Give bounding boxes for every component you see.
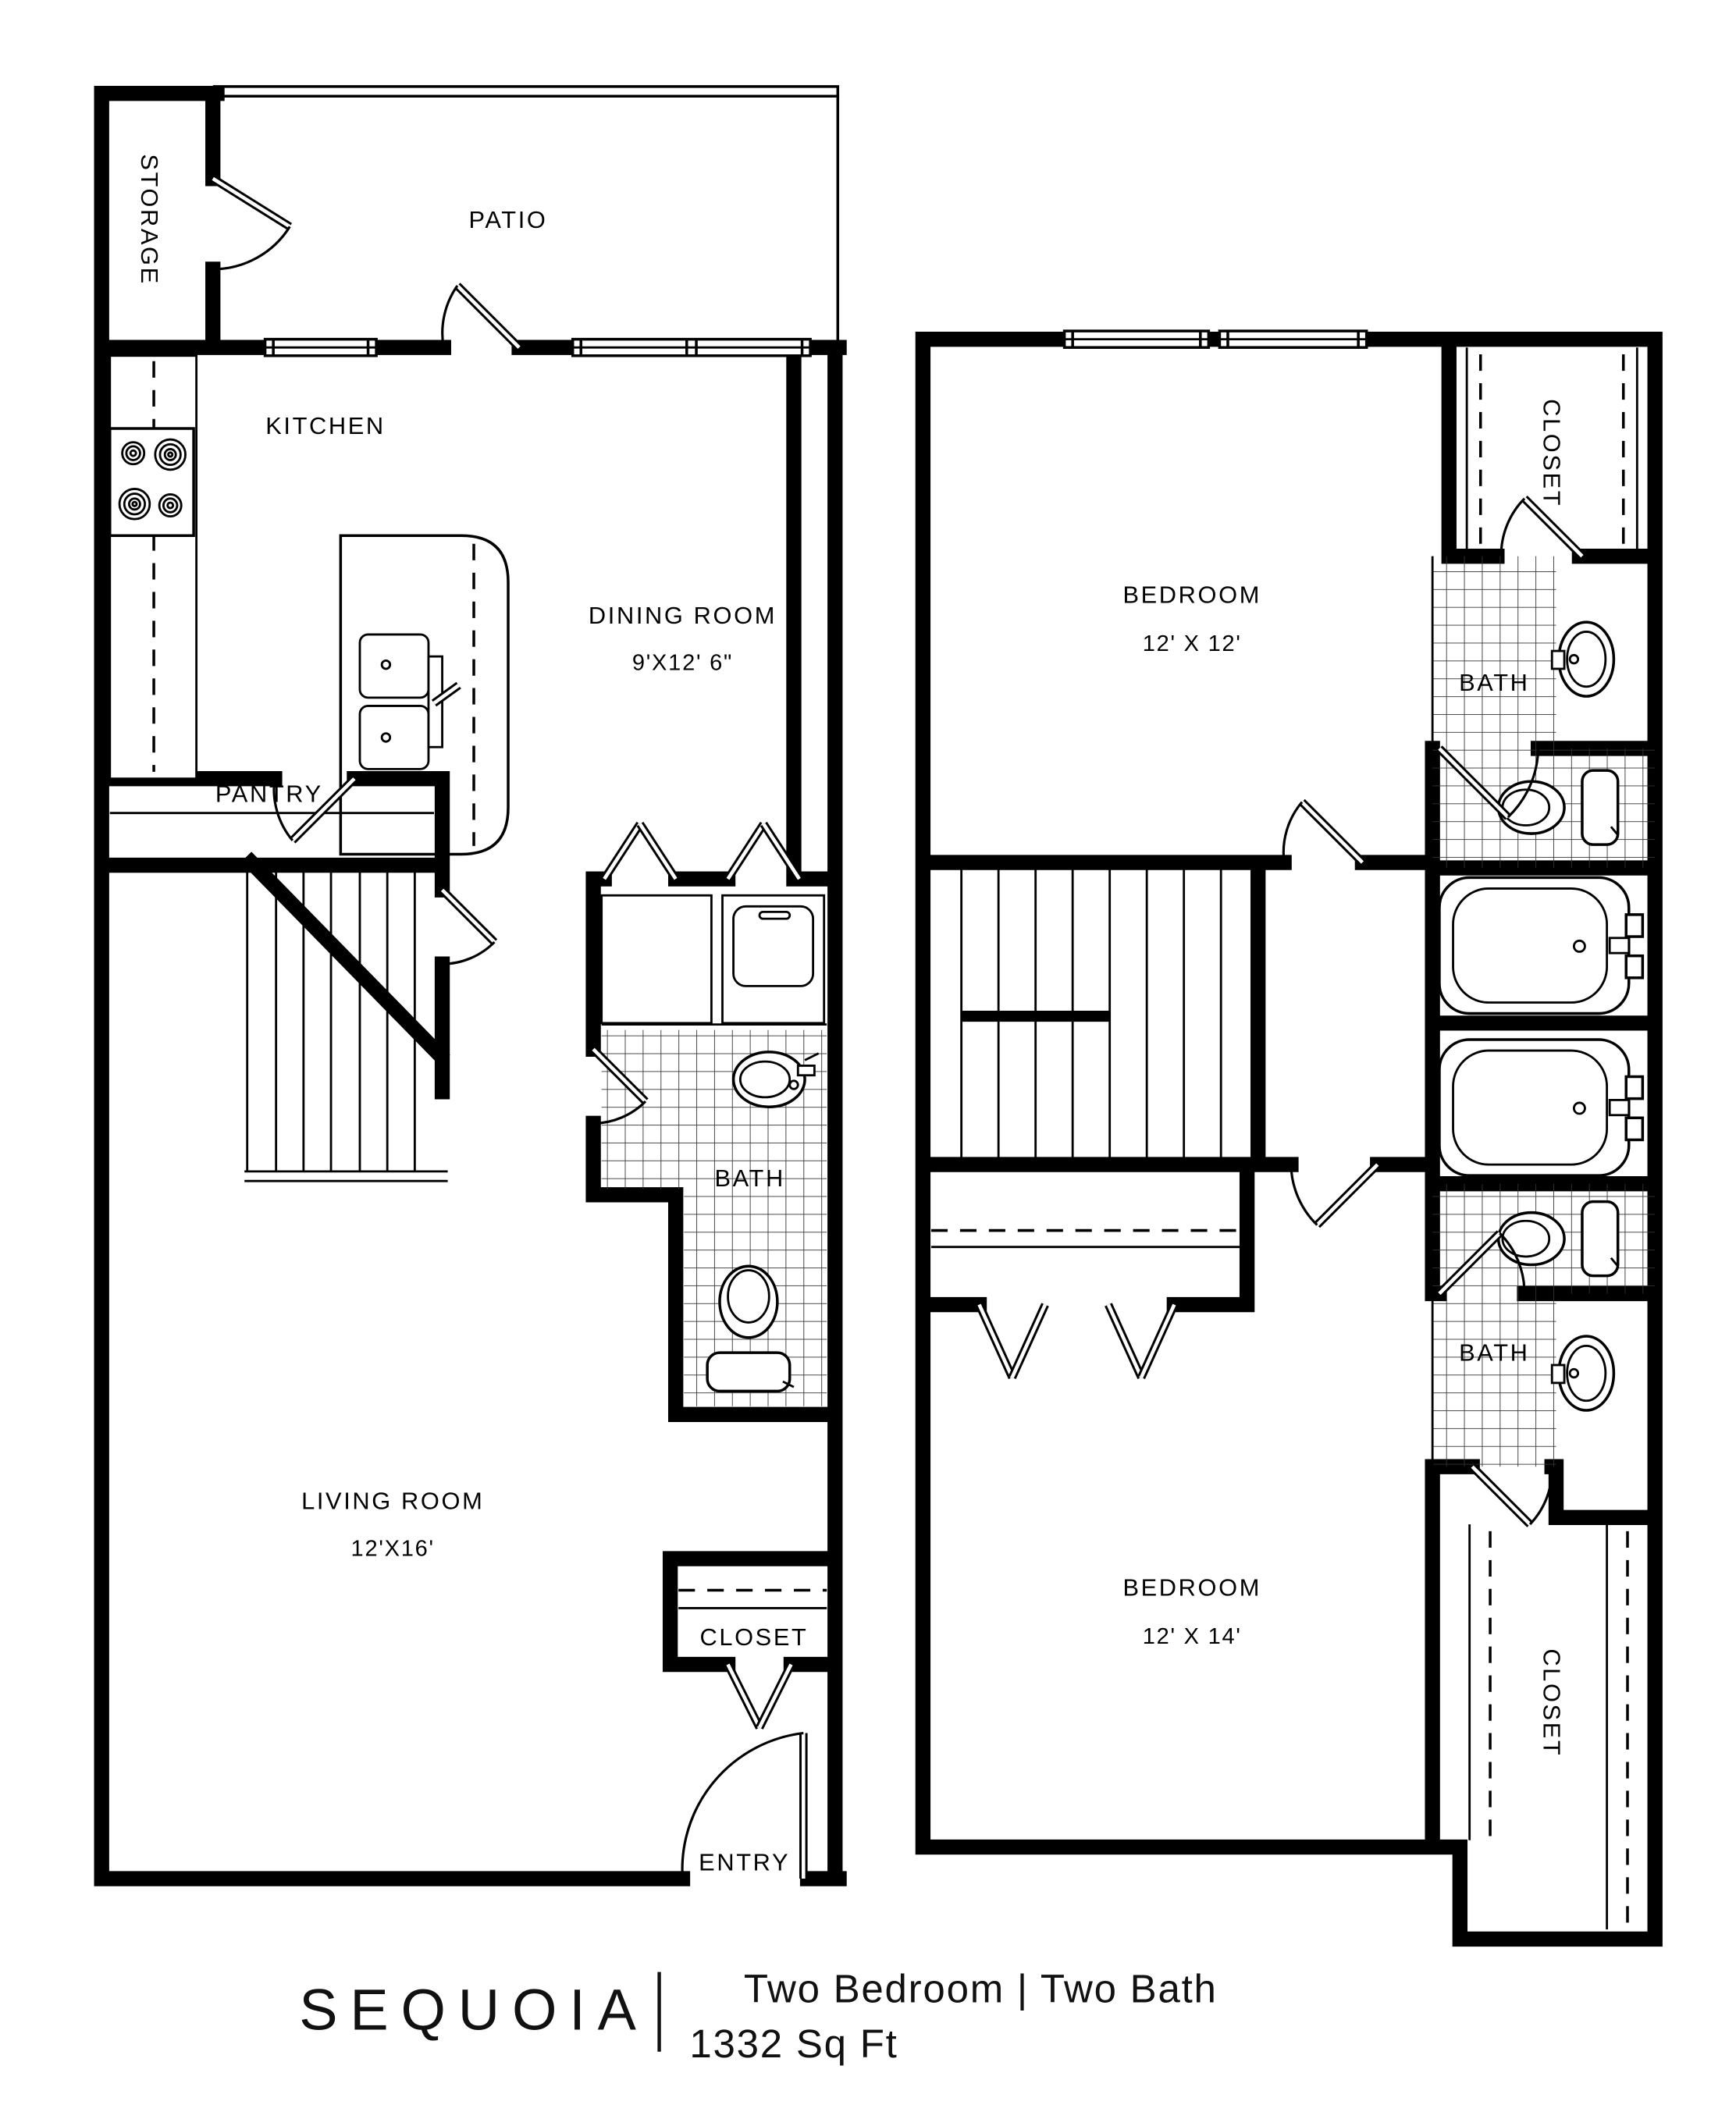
bedroom2-label: BEDROOM	[1122, 1574, 1261, 1602]
dryer	[602, 895, 712, 1023]
patio-door	[443, 286, 519, 347]
bath2-label-second-floor: BATH	[1459, 1339, 1529, 1367]
washer	[722, 895, 824, 1023]
living-room-dims: 12'X16'	[351, 1537, 435, 1562]
kitchen-counter	[110, 356, 197, 779]
bedroom1-dims: 12' X 12'	[1143, 631, 1242, 656]
bath2-sink	[1552, 1336, 1613, 1410]
storage-door	[213, 179, 290, 269]
second-floor-stairs	[962, 868, 1222, 1159]
closet-top-label: CLOSET	[1539, 399, 1566, 507]
storage-label: STORAGE	[136, 154, 163, 285]
dining-room-dims: 9'X12' 6"	[632, 651, 733, 676]
dining-room-label: DINING ROOM	[589, 602, 777, 629]
bath2-tile	[1432, 1293, 1556, 1467]
second-floor-plan: CLOSET BEDROOM 12' X 12' BATH BATH BEDRO…	[923, 331, 1655, 1939]
dining-window	[573, 340, 810, 356]
bedroom1-door	[1283, 802, 1362, 862]
bath1-label-second-floor: BATH	[1459, 669, 1529, 696]
plan-area: 1332 Sq Ft	[689, 2021, 898, 2066]
stove	[110, 428, 194, 535]
bedroom1-label: BEDROOM	[1122, 581, 1261, 608]
laundry-bifold-doors	[604, 824, 799, 879]
pantry-label: PANTRY	[215, 780, 323, 808]
plan-name: SEQUOIA	[299, 1978, 648, 2043]
closet-label-first-floor: CLOSET	[699, 1623, 808, 1651]
floorplan-drawing: STORAGE PATIO KITCHEN DINING ROOM 9'X12'…	[0, 0, 1736, 2119]
bedroom2-dims: 12' X 14'	[1143, 1624, 1242, 1649]
bath1-tile-second-floor	[1432, 556, 1556, 748]
first-floor-plan: STORAGE PATIO KITCHEN DINING ROOM 9'X12'…	[101, 87, 839, 1879]
patio-label: PATIO	[469, 206, 548, 233]
living-room-label: LIVING ROOM	[301, 1488, 484, 1515]
kitchen-window	[265, 340, 377, 356]
floorplan-page: STORAGE PATIO KITCHEN DINING ROOM 9'X12'…	[0, 0, 1736, 2119]
kitchen-label: KITCHEN	[265, 412, 386, 439]
bedroom2-door	[1291, 1164, 1378, 1225]
title-block: SEQUOIA Two Bedroom | Two Bath 1332 Sq F…	[299, 1966, 1217, 2065]
bathtub1	[1439, 877, 1642, 1013]
plan-description: Two Bedroom | Two Bath	[744, 1966, 1218, 2011]
entry-label: ENTRY	[699, 1848, 790, 1875]
bath1-sink	[1552, 622, 1613, 696]
closet2-door	[1472, 1467, 1552, 1524]
kitchen-island	[340, 535, 508, 854]
stair-hall-door	[443, 890, 495, 964]
bath-label-first-floor: BATH	[714, 1164, 784, 1192]
closet-bottom-label: CLOSET	[1539, 1648, 1566, 1757]
bathtub2	[1439, 1040, 1642, 1175]
